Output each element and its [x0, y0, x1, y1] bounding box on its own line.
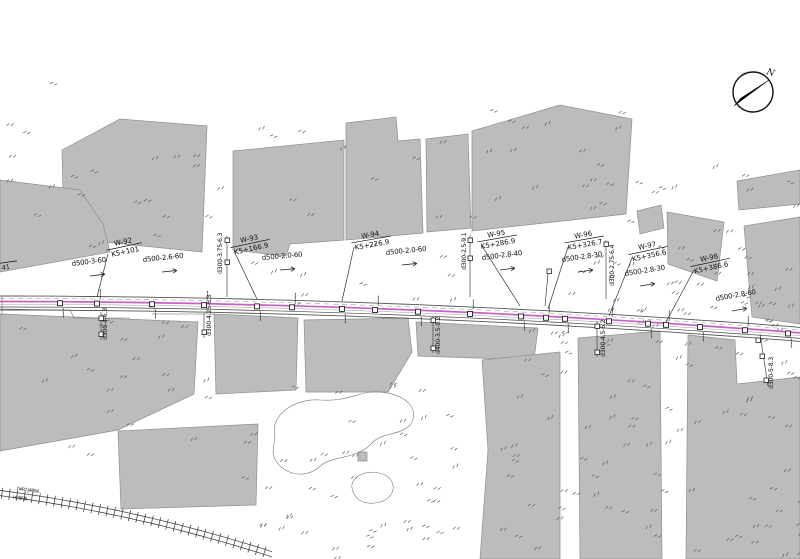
railway-label-line1: 7#R7:J48S4. [16, 486, 40, 495]
vegetation-tick [9, 155, 16, 158]
manhole-symbol [95, 301, 100, 306]
branch-pipe-label: d300-3.75-6.3 [217, 233, 224, 274]
railway-tie [158, 517, 161, 528]
manhole-symbol [255, 304, 260, 309]
manhole-symbol [290, 305, 295, 310]
parcel [214, 314, 298, 394]
railway-tie [225, 535, 228, 546]
parcel [118, 424, 258, 509]
pond-outline [273, 392, 414, 474]
vegetation-tick [420, 415, 427, 420]
station-tick [669, 317, 670, 320]
vegetation-tick [300, 272, 307, 277]
manhole-label-w95: W-95 K5+286.9 [476, 227, 519, 252]
manhole-symbol [544, 315, 549, 320]
vegetation-tick [270, 134, 277, 139]
vegetation-tick [573, 492, 580, 495]
vegetation-tick [561, 489, 568, 492]
vegetation-tick [712, 164, 719, 169]
vegetation-tick [367, 545, 374, 549]
parcel [637, 205, 664, 234]
branch-pipe-label: d400-3.5-9.2 [435, 316, 442, 354]
station-tick [155, 316, 156, 319]
vegetation-tick [309, 487, 316, 491]
vegetation-tick [558, 333, 565, 338]
railway-tie [248, 542, 251, 553]
north-arrow-needle [734, 80, 769, 106]
vegetation-tick [380, 523, 387, 528]
vegetation-tick [7, 123, 14, 126]
station-tick [63, 308, 64, 311]
vegetation-tick [265, 486, 272, 489]
vegetation-tick [205, 215, 212, 219]
parcel [346, 117, 423, 240]
vegetation-tick [446, 413, 453, 418]
railway-tie [113, 507, 115, 518]
station-tick [568, 330, 569, 333]
station-tick [378, 302, 379, 305]
station-tick [473, 300, 474, 303]
vegetation-tick [422, 524, 429, 528]
vegetation-tick [652, 190, 659, 193]
vegetation-tick [434, 487, 441, 490]
vegetation-tick [697, 283, 704, 286]
pipe-segment-label: d500-2.8-60 [715, 288, 756, 303]
station-tick [748, 322, 749, 325]
manhole-symbol [58, 301, 63, 306]
vegetation-tick [413, 297, 420, 300]
station-tick [549, 310, 550, 313]
manhole-id: W-95 [487, 229, 506, 240]
railway-tie [196, 527, 199, 538]
vegetation-tick [436, 530, 443, 534]
vegetation-tick [448, 274, 455, 278]
pipe-segment-label: d500-2.0-60 [385, 245, 426, 257]
vegetation-tick [217, 186, 224, 190]
parcel [737, 170, 800, 210]
station-tick [295, 296, 296, 299]
north-arrow: N [733, 67, 777, 112]
vegetation-tick [665, 440, 672, 445]
vegetation-tick [665, 406, 672, 411]
railway-tie [9, 489, 10, 500]
railway-tie [181, 523, 184, 534]
plan-canvas: 7#R7:J48S4. I·6!8F/8. 41 W-92 K5+101 W-9… [0, 0, 800, 559]
station-tick [100, 292, 101, 295]
vegetation-tick [404, 520, 411, 523]
railway-label-line2: I·6!8F/8. [13, 495, 28, 503]
station-tick [669, 310, 670, 313]
railway-tie [173, 521, 176, 532]
railway-tie [54, 496, 56, 507]
vegetation-tick [452, 464, 459, 469]
parcel [480, 352, 560, 559]
vegetation-tick [419, 389, 426, 392]
pipe-segment-label: d500-2.6-60 [142, 252, 183, 264]
station-tick [473, 306, 474, 309]
vegetation-tick [87, 453, 94, 456]
pipe-segment-label: d500-2.8-40 [481, 249, 522, 262]
station-tick [155, 312, 156, 315]
railway-tie [76, 500, 78, 511]
manhole-symbol [519, 314, 524, 319]
manhole-symbol [416, 309, 421, 314]
vegetation-tick [298, 129, 305, 133]
manhole-station: K5+326.7 [567, 238, 603, 252]
station-tick [612, 313, 613, 316]
flow-arrow [640, 281, 656, 288]
vegetation-tick [369, 529, 376, 534]
vegetation-tick [260, 523, 267, 527]
railway-tie [69, 498, 71, 509]
railway-tie [91, 503, 93, 514]
vegetation-tick [565, 350, 572, 355]
parcel [686, 335, 800, 559]
railway-tie [218, 533, 221, 544]
vegetation-tick [423, 537, 430, 540]
vegetation-tick [251, 261, 258, 265]
railway-tie [61, 497, 63, 508]
vegetation-tick [568, 292, 575, 295]
manhole-symbol [786, 331, 791, 336]
vegetation-tick [560, 371, 567, 374]
vegetation-tick [258, 126, 265, 130]
vegetation-tick [270, 269, 277, 274]
station-tick [791, 342, 792, 345]
vegetation-tick [619, 111, 626, 115]
vegetation-tick [410, 456, 417, 461]
railway-tie [1, 488, 2, 499]
manhole-label-w97: W-97 K5+356.6 [627, 238, 670, 264]
vegetation-tick [676, 428, 683, 432]
vegetation-tick [627, 219, 634, 224]
railway-tie [151, 515, 154, 526]
station-tick [568, 327, 569, 330]
vegetation-tick [636, 180, 643, 185]
manhole-symbol [563, 316, 568, 321]
vegetation-tick [736, 352, 743, 356]
station-tick [295, 299, 296, 302]
vegetation-tick [399, 419, 406, 423]
manhole-symbol [373, 308, 378, 313]
vegetation-tick [427, 498, 434, 503]
vegetation-tick [23, 130, 30, 134]
station-tick [473, 303, 474, 306]
vegetation-tick [675, 355, 682, 360]
parcel [578, 331, 662, 559]
vegetation-tick [310, 458, 317, 462]
branch-pipe-label: d300-2.75-6.4 [609, 245, 616, 286]
vegetation-tick [742, 174, 749, 177]
vegetation-tick [366, 534, 373, 539]
manhole-label-w96: W-96 K5+326.7 [563, 228, 606, 253]
parcels-layer [0, 105, 800, 559]
pipe-segment-label: d500-2.8-30 [561, 250, 602, 264]
railway-tie [240, 540, 243, 551]
vegetation-tick [301, 293, 308, 297]
station-tick [207, 291, 208, 294]
manhole-symbol [468, 311, 473, 316]
vegetation-tick [400, 432, 407, 436]
railway-tie [98, 504, 100, 515]
manhole-symbol [664, 322, 669, 327]
vegetation-tick [672, 291, 679, 295]
railway-tie [166, 519, 169, 530]
station-tick [100, 289, 101, 292]
parcel [358, 452, 367, 461]
railway-tie [255, 544, 258, 555]
railway-tie [128, 510, 130, 521]
station-tick [345, 314, 346, 317]
vegetation-tick [203, 377, 210, 382]
railway-tie [136, 512, 138, 523]
station-tick [100, 296, 101, 299]
vegetation-tick [379, 441, 386, 446]
parcel [426, 134, 471, 232]
vegetation-tick [562, 331, 569, 335]
vegetation-tick [301, 531, 308, 534]
vegetation-tick [453, 527, 460, 530]
railway-tie [188, 525, 191, 536]
vegetation-tick [551, 331, 558, 334]
vegetation-tick [278, 526, 285, 531]
railway-tie [263, 547, 266, 557]
manhole-symbol [646, 321, 651, 326]
railway-tie [106, 506, 108, 517]
vegetation-tick [440, 255, 447, 258]
svg-text:41: 41 [1, 263, 10, 272]
vegetation-tick [667, 282, 674, 286]
parcel [744, 217, 800, 324]
parcel [472, 105, 632, 231]
vegetation-tick [406, 526, 413, 531]
vegetation-tick [787, 371, 794, 375]
flow-arrow [162, 268, 177, 274]
vegetation-tick [348, 420, 355, 423]
station-tick [791, 345, 792, 348]
manhole-symbol [340, 306, 345, 311]
station-tick [748, 316, 749, 319]
vegetation-tick [50, 81, 57, 86]
vegetation-tick [330, 494, 337, 498]
vegetation-tick [68, 445, 75, 448]
vegetation-tick [593, 260, 600, 264]
station-tick [378, 299, 379, 302]
vegetation-tick [684, 312, 691, 315]
flow-arrow [500, 266, 515, 272]
manhole-station: K5+286.9 [480, 237, 516, 251]
railway-tie [39, 493, 41, 504]
vegetation-tick [321, 453, 328, 457]
station-tick [63, 311, 64, 314]
branch-pipe-label: d300-4.5-6.2 [600, 319, 607, 357]
station-tick [155, 309, 156, 312]
railway-tie [203, 529, 206, 540]
pipe-segment-label: d500-2.8-30 [624, 264, 665, 278]
vegetation-tick [359, 282, 366, 287]
vegetation-tick [205, 396, 212, 400]
flow-arrow [732, 306, 748, 313]
branch-pipe-label: d300-4.25-6.3 [206, 295, 213, 336]
vegetation-tick [738, 247, 745, 251]
railway-tie [83, 501, 85, 512]
vegetation-tick [450, 447, 457, 451]
vegetation-tick [671, 185, 678, 190]
vegetation-tick [710, 305, 717, 309]
vegetation-tick [675, 280, 682, 284]
railway-tie [46, 494, 48, 505]
vegetation-tick [561, 341, 568, 344]
manhole-symbol [698, 325, 703, 330]
vegetation-tick [280, 459, 287, 462]
branch-pipe-label: d300-2.5-9.1 [461, 232, 468, 270]
branch-pipe-label: d300-4-6.3 [102, 308, 109, 340]
vegetation-tick [741, 301, 748, 306]
vegetation-tick [490, 109, 497, 114]
vegetation-tick [781, 360, 788, 365]
flow-arrow [280, 267, 295, 273]
railway-tie [233, 537, 236, 548]
railway-tie [143, 514, 145, 525]
plan-drawing: 7#R7:J48S4. I·6!8F/8. 41 W-92 K5+101 W-9… [0, 0, 800, 559]
railway-tie [211, 531, 214, 542]
vegetation-tick [677, 308, 684, 311]
railway-tie [121, 509, 123, 520]
station-tick [378, 296, 379, 299]
vegetation-tick [659, 186, 666, 191]
manhole-symbol [743, 328, 748, 333]
manhole-symbol [607, 319, 612, 324]
station-tick [748, 319, 749, 322]
vegetation-tick [661, 489, 668, 494]
vegetation-tick [637, 309, 644, 313]
pond-outline-small [352, 472, 393, 503]
parcel [304, 318, 412, 392]
manhole-symbol [150, 302, 155, 307]
vegetation-tick [342, 451, 349, 455]
station-tick [295, 293, 296, 296]
vegetation-tick [726, 230, 733, 233]
flow-arrow [402, 261, 417, 267]
station-tick [549, 307, 550, 310]
vegetation-tick [332, 547, 339, 551]
branch-pipe-label: d300-5-8.3 [768, 357, 775, 389]
vegetation-tick [416, 482, 423, 486]
vegetation-tick [449, 297, 456, 302]
